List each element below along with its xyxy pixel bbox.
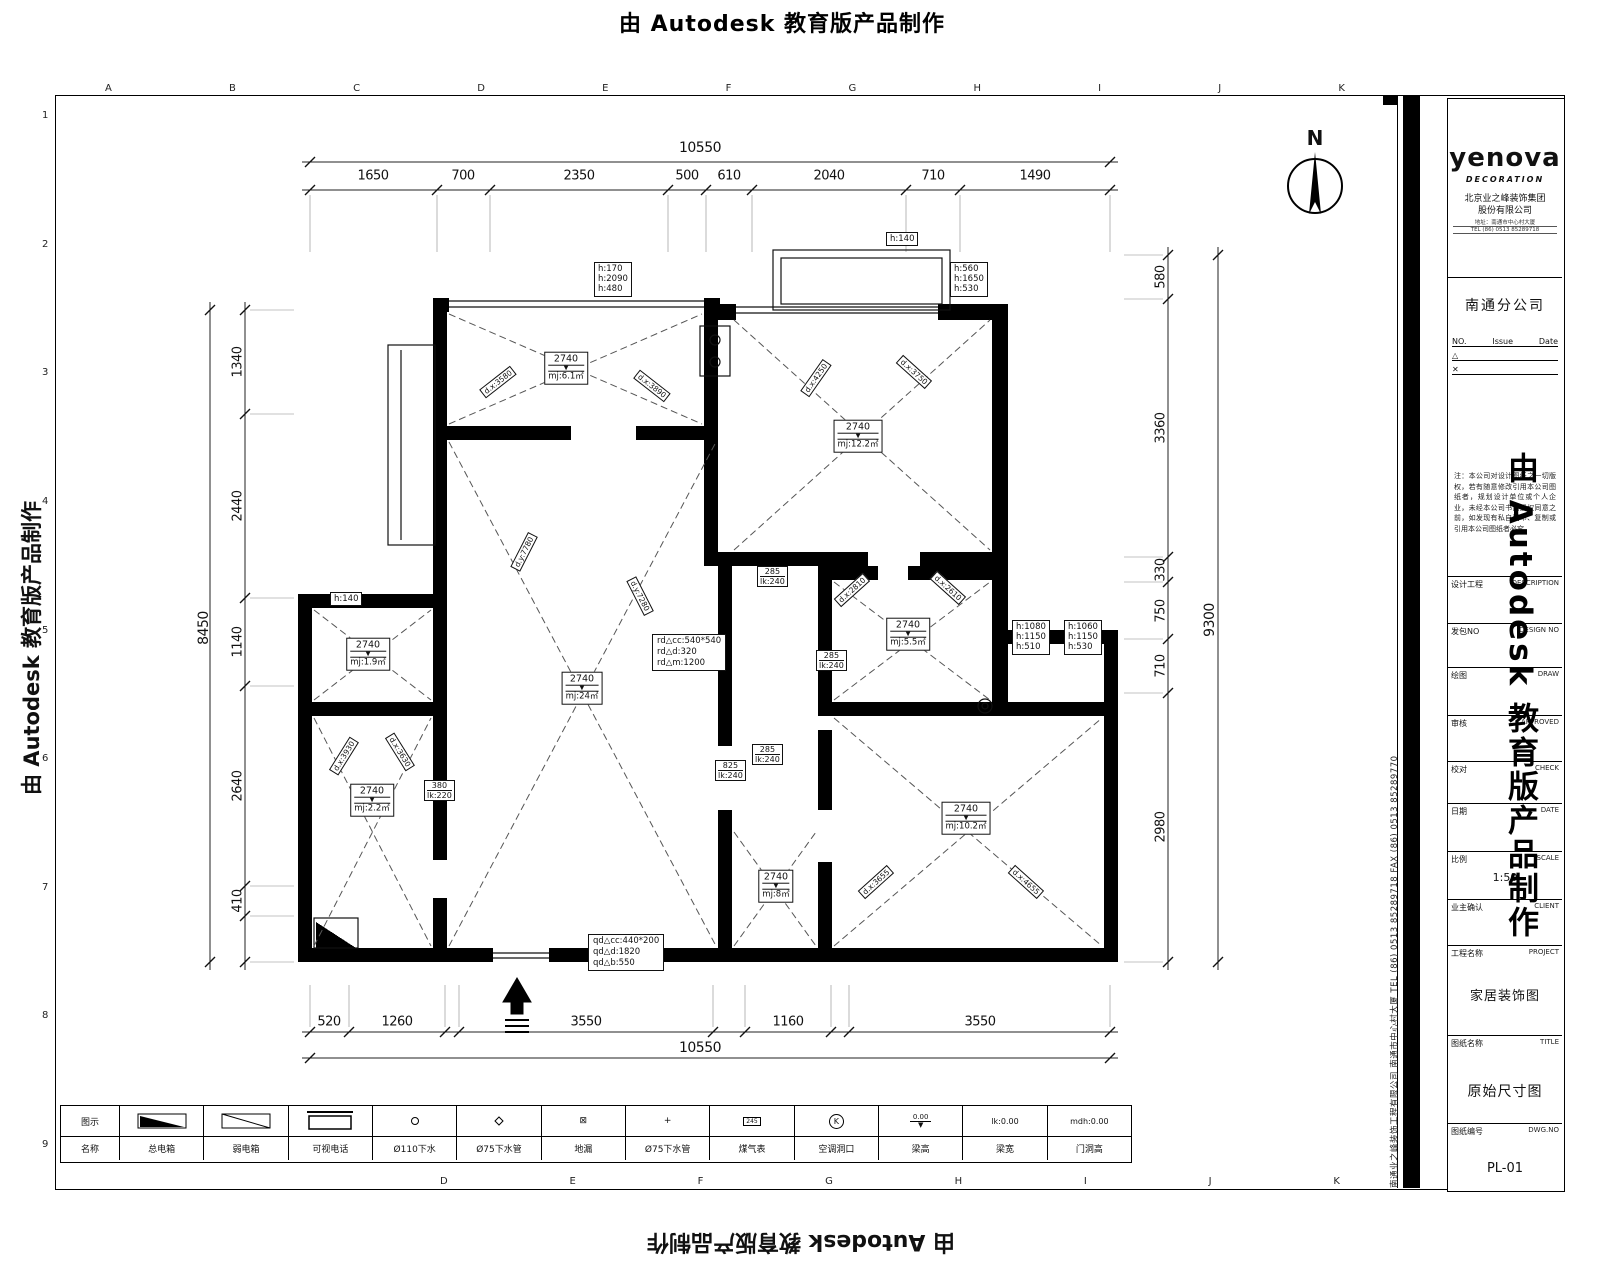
- revision-row: ✕: [1452, 365, 1558, 375]
- legend-name: 弱电箱: [203, 1136, 287, 1160]
- legend-name: Ø75下水管: [625, 1136, 709, 1160]
- dim-right-seg: 3360: [1154, 412, 1169, 443]
- dim-bottom-seg: 3550: [570, 1015, 601, 1030]
- drawing-number: PL-01: [1448, 1161, 1562, 1176]
- dim-total-right: 9300: [1202, 603, 1218, 637]
- field-row: 工程名称PROJECT: [1448, 945, 1562, 961]
- dim-right-seg: 330: [1154, 558, 1169, 581]
- dim-right-seg: 710: [1154, 654, 1169, 677]
- dimension-lines: [210, 162, 1218, 1058]
- dim-top-seg: 610: [717, 169, 740, 184]
- sheet-title: 原始尺寸图: [1448, 1081, 1562, 1101]
- height-box: h:560 h:1650 h:530: [950, 262, 988, 297]
- dim-top-seg: 700: [451, 169, 474, 184]
- room-area: mj:1.9㎡: [350, 658, 386, 668]
- dim-bottom-seg: 520: [317, 1015, 340, 1030]
- ac-opening-icon: K: [794, 1106, 878, 1136]
- dim-total-left: 8450: [196, 611, 212, 645]
- dim-right-seg: 750: [1154, 599, 1169, 622]
- walls: [298, 298, 1118, 962]
- dim-left-seg: 1340: [231, 346, 246, 377]
- room-area: mj:12.2㎡: [838, 440, 879, 450]
- room-label: 2740 ▼ mj:12.2㎡: [834, 420, 883, 453]
- beam-label: 285 lk:240: [816, 650, 847, 671]
- legend-name: Ø75下水管: [456, 1136, 540, 1160]
- legend-name: 梁宽: [962, 1136, 1046, 1160]
- drain-75-icon: [456, 1106, 540, 1136]
- dim-right-seg: 580: [1154, 265, 1169, 288]
- room-area: mj:24㎡: [566, 692, 599, 702]
- room-area: mj:6.1㎡: [548, 372, 584, 382]
- beam-label: 825 lk:240: [715, 760, 746, 781]
- legend-name: 煤气表: [709, 1136, 793, 1160]
- north-label: N: [1307, 126, 1324, 150]
- project-name: 家居装饰图: [1448, 985, 1562, 1004]
- room-label: 2740 ▼ mj:5.5㎡: [886, 618, 930, 651]
- north-arrow-icon: [1288, 152, 1342, 214]
- logo-sub: DECORATION: [1448, 175, 1562, 184]
- logo: yenova: [1448, 143, 1562, 173]
- dim-top-seg: 2040: [813, 169, 844, 184]
- dim-bottom-seg: 3550: [964, 1015, 995, 1030]
- room-label: 2740 ▼ mj:6.1㎡: [544, 352, 588, 385]
- dim-top-seg: 1650: [357, 169, 388, 184]
- floor-drain-icon: ⊠: [541, 1106, 625, 1136]
- legend-name: 可视电话: [288, 1136, 372, 1160]
- field-row: 图纸名称TITLE: [1448, 1035, 1562, 1051]
- dim-left-seg: 2440: [231, 490, 246, 521]
- room-label: 2740 ▼ mj:24㎡: [562, 672, 603, 705]
- company-name: 股份有限公司: [1448, 203, 1562, 216]
- beam-label: 285 lk:240: [752, 744, 783, 765]
- dim-left-seg: 410: [231, 889, 246, 912]
- legend-name-header: 名称: [61, 1136, 119, 1160]
- height-box: h:1080 h:1150 h:510: [1012, 620, 1050, 655]
- issue-header: NO. Issue Date: [1452, 337, 1558, 347]
- main-electric-box-icon: [119, 1106, 203, 1136]
- beam-height-icon: 0.00▼: [878, 1106, 962, 1136]
- room-label: 2740 ▼ mj:10.2㎡: [942, 802, 991, 835]
- entrance-arrow-icon: [503, 978, 531, 1032]
- watermark-right: 由 Autodesk 教育版产品制作: [1498, 452, 1543, 940]
- legend-name: 梁高: [878, 1136, 962, 1160]
- dim-left-seg: 1140: [231, 626, 246, 657]
- company-address: 地址：南通市中心村大厦: [1453, 218, 1557, 227]
- drawing-sheet: 由 Autodesk 教育版产品制作 由 Autodesk 教育版产品制作 由 …: [0, 0, 1600, 1280]
- room-area: mj:10.2㎡: [946, 822, 987, 832]
- beam-label: 380 lk:220: [424, 780, 455, 801]
- weak-electric-box-icon: [203, 1106, 287, 1136]
- legend-name: Ø110下水: [372, 1136, 456, 1160]
- dim-left-seg: 2640: [231, 770, 246, 801]
- revision-row: △: [1452, 351, 1558, 361]
- legend-table: 图示 ⊠ + 245 K 0.00▼ lk:0.00 mdh:0.00 名称 总…: [60, 1105, 1132, 1163]
- room-area: mj:2.2㎡: [354, 804, 390, 814]
- height-box: h:140: [330, 592, 362, 606]
- dim-total-top: 10550: [679, 140, 721, 156]
- video-intercom-icon: [288, 1106, 372, 1136]
- side-company-text: 南通业之峰装饰工程有限公司 南通市中心村大厦 TEL (86) 0513 852…: [1388, 755, 1400, 1188]
- dim-right-seg: 2980: [1154, 811, 1169, 842]
- dim-bottom-seg: 1160: [772, 1015, 803, 1030]
- legend-name: 空调洞口: [794, 1136, 878, 1160]
- legend-name: 地漏: [541, 1136, 625, 1160]
- legend-name: 总电箱: [119, 1136, 203, 1160]
- company-phone: TEL (86) 0513 85289718: [1453, 227, 1557, 234]
- height-box: h:140: [886, 232, 918, 246]
- dim-top-seg: 500: [675, 169, 698, 184]
- rd-note: rd△cc:540*540 rd△d:320 rd△m:1200: [652, 634, 726, 671]
- dim-bottom-seg: 1260: [381, 1015, 412, 1030]
- dim-total-bottom: 10550: [679, 1040, 721, 1056]
- height-box: h:1060 h:1150 h:530: [1064, 620, 1102, 655]
- room-area: mj:5.5㎡: [890, 638, 926, 648]
- height-box: h:170 h:2090 h:480: [594, 262, 632, 297]
- branch-name: 南通分公司: [1448, 295, 1562, 315]
- room-area: mj:8㎡: [762, 890, 789, 900]
- room-label: 2740 ▼ mj:2.2㎡: [350, 784, 394, 817]
- gas-meter-icon: 245: [709, 1106, 793, 1136]
- drain-110-icon: [372, 1106, 456, 1136]
- legend-symbol-header: 图示: [61, 1106, 119, 1136]
- beam-width-icon: lk:0.00: [962, 1106, 1046, 1136]
- dim-top-seg: 2350: [563, 169, 594, 184]
- dim-top-seg: 710: [921, 169, 944, 184]
- beam-label: 285 lk:240: [757, 566, 788, 587]
- qd-note: qd△cc:440*200 qd△d:1820 qd△b:550: [588, 934, 664, 971]
- room-label: 2740 ▼ mj:1.9㎡: [346, 638, 390, 671]
- legend-name: 门洞高: [1047, 1136, 1131, 1160]
- door-height-icon: mdh:0.00: [1047, 1106, 1131, 1136]
- room-label: 2740 ▼ mj:8㎡: [758, 870, 793, 903]
- drain-pipe-icon: +: [625, 1106, 709, 1136]
- dim-top-seg: 1490: [1019, 169, 1050, 184]
- field-row: 图纸编号DWG.NO: [1448, 1123, 1562, 1139]
